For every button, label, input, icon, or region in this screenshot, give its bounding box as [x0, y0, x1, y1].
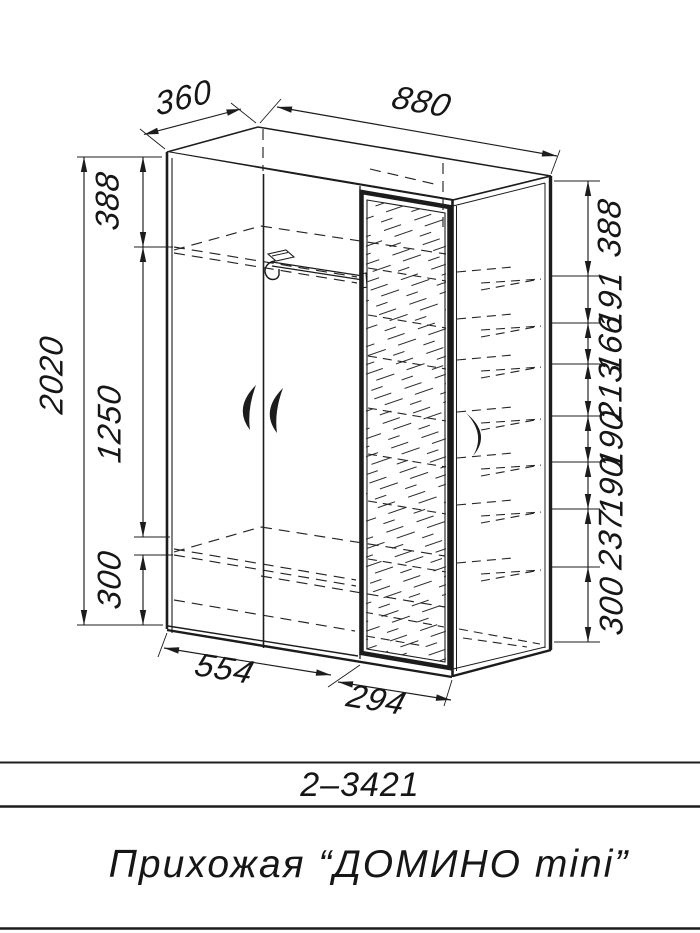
dim-depth-label: 360: [154, 73, 214, 124]
title-block: 2–3421 Прихожая “ДОМИНО mini”: [0, 763, 700, 929]
dim-left-chain-label: 388: [90, 169, 127, 232]
mirror-door: [362, 192, 450, 668]
dim-bottom-label: 294: [341, 678, 410, 723]
dim-width-label: 880: [387, 80, 456, 125]
drawing-sheet: 360 880 2020 388 1250 300 388 191 166 21…: [0, 0, 700, 933]
dim-right-chain-label: 300: [594, 574, 631, 637]
mirror-glass-hatch: [364, 199, 446, 663]
model-code: 2–3421: [299, 766, 419, 804]
dim-left-chain-label: 1250: [92, 382, 129, 465]
product-name: Прихожая “ДОМИНО mini”: [109, 843, 630, 886]
wardrobe-technical-drawing: 360 880 2020 388 1250 300 388 191 166 21…: [0, 0, 700, 933]
dim-bottom-label: 554: [190, 647, 258, 692]
dim-right-chain-label: 388: [592, 196, 629, 259]
dim-height-overall-label: 2020: [34, 333, 71, 417]
dim-left-chain-label: 300: [92, 548, 129, 611]
dim-right-chain-label: 237: [593, 508, 630, 573]
cabinet-body: [167, 127, 551, 677]
dim-right-chain-label: 190: [594, 455, 631, 518]
